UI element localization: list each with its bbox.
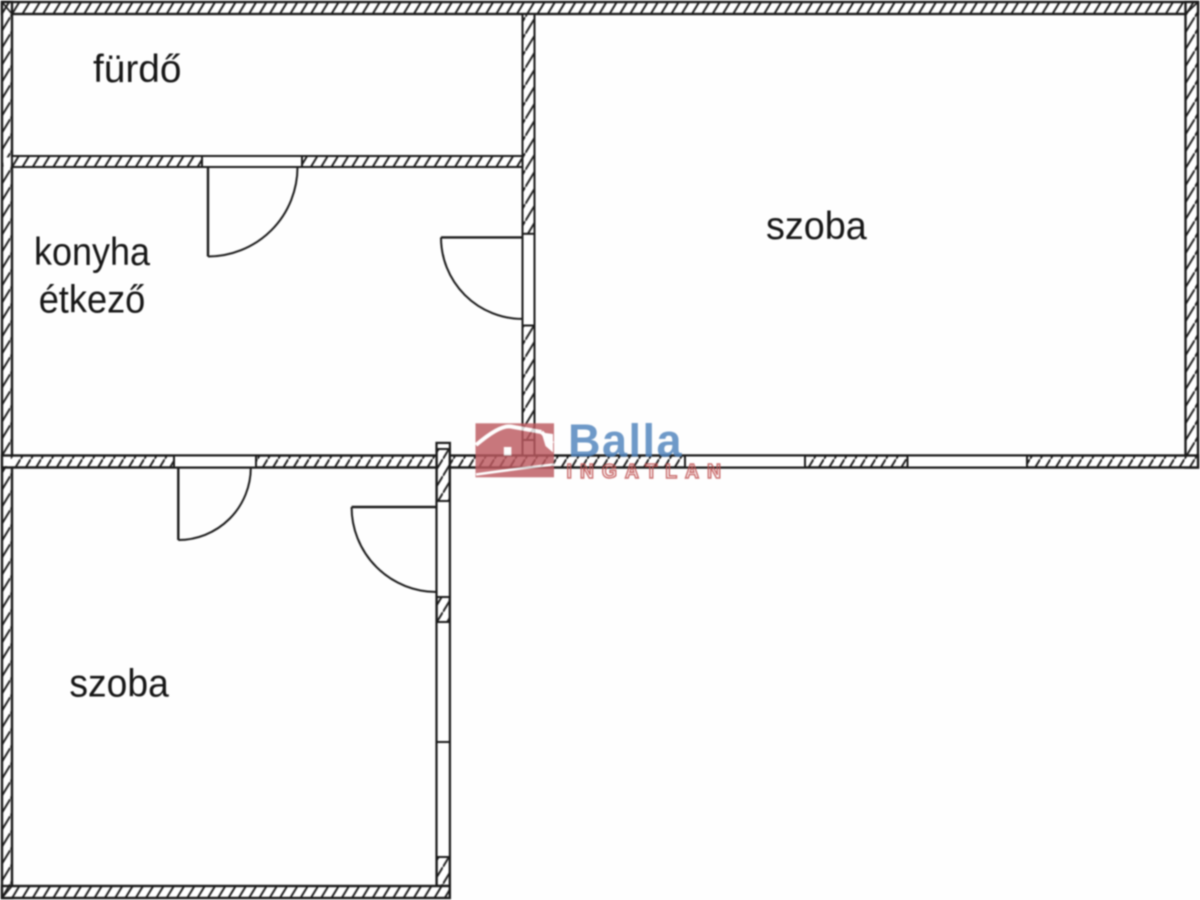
svg-text:konyha: konyha [34, 231, 150, 274]
svg-text:INGATLAN: INGATLAN [567, 461, 730, 483]
svg-text:szoba: szoba [69, 663, 169, 706]
svg-text:fürdő: fürdő [93, 48, 182, 91]
svg-text:Balla: Balla [568, 414, 683, 466]
svg-text:szoba: szoba [766, 205, 867, 248]
svg-text:étkező: étkező [39, 278, 146, 321]
